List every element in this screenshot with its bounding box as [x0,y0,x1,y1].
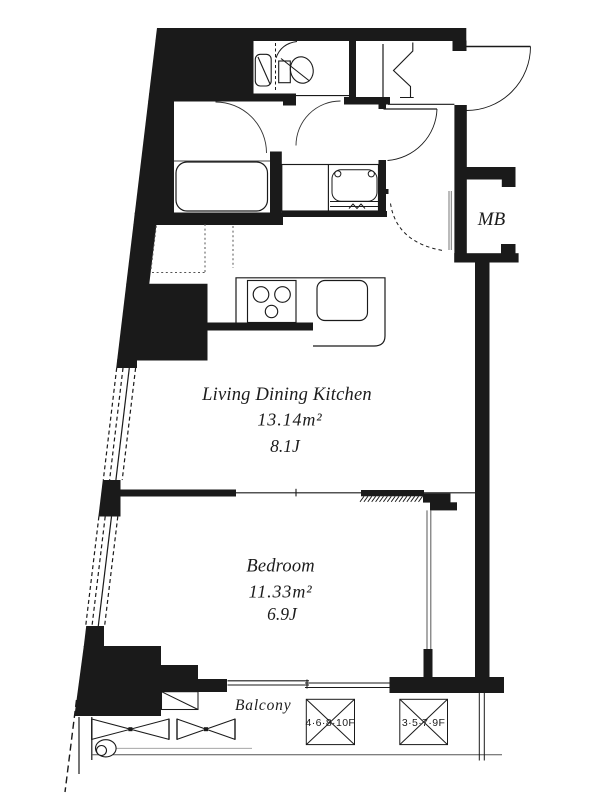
svg-text:Balcony: Balcony [235,697,291,714]
svg-text:11.33m²: 11.33m² [249,582,313,602]
svg-text:4·6·8·10F: 4·6·8·10F [306,717,356,729]
svg-text:13.14m²: 13.14m² [257,410,322,430]
svg-text:3·5·7·9F: 3·5·7·9F [402,717,445,729]
svg-text:Living Dining Kitchen: Living Dining Kitchen [201,385,372,405]
svg-text:MB: MB [477,209,506,230]
svg-text:Bedroom: Bedroom [246,557,315,577]
svg-text:8.1J: 8.1J [270,436,301,456]
svg-text:6.9J: 6.9J [267,604,298,624]
